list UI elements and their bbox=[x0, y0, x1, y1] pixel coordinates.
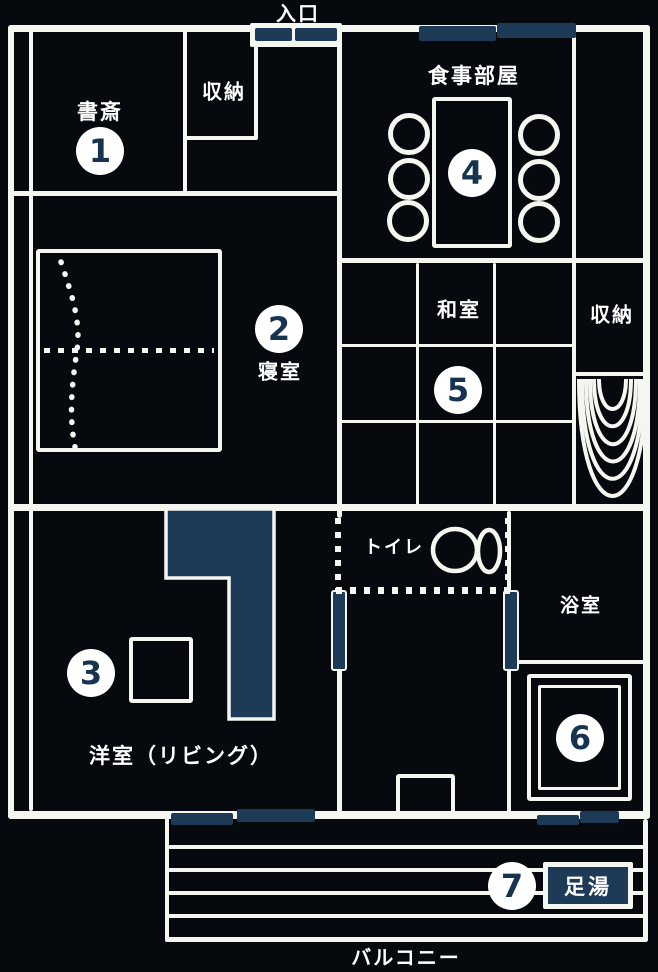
wall-right-corridor bbox=[572, 29, 576, 509]
balcony-door-left-panel-2 bbox=[237, 809, 315, 822]
balcony-label: バルコニー bbox=[351, 942, 461, 971]
balcony-door-right-panel-1 bbox=[537, 815, 579, 825]
balcony-right-edge bbox=[643, 819, 648, 942]
closet-arc-4 bbox=[586, 379, 640, 462]
closet-arc-6 bbox=[579, 379, 646, 496]
entrance-label: 入口 bbox=[276, 0, 320, 27]
dining-chair-1 bbox=[388, 113, 430, 155]
wall-bedroom-top bbox=[8, 191, 341, 196]
dining-label: 食事部屋 bbox=[428, 60, 520, 90]
closet-hanger-arcs bbox=[579, 379, 646, 496]
dining-chair-5 bbox=[518, 159, 560, 201]
balcony-door-left-panel-1 bbox=[171, 813, 233, 825]
living-table bbox=[129, 637, 193, 703]
bedroom-number-badge: 2 bbox=[255, 305, 303, 353]
living-label: 洋室（リビング） bbox=[89, 740, 273, 770]
dining-window-panel-1 bbox=[419, 26, 496, 41]
toilet-tank-icon bbox=[478, 530, 500, 572]
bedroom-label: 寝室 bbox=[258, 356, 302, 385]
tatami-grid-horizontal-1 bbox=[339, 344, 574, 347]
tatami-grid-horizontal-2 bbox=[339, 420, 574, 423]
bathroom-label: 浴室 bbox=[560, 591, 602, 618]
wall-left-inner bbox=[29, 29, 33, 811]
wall-closet-right-bottom bbox=[575, 372, 648, 376]
toilet-partition-left bbox=[335, 518, 341, 590]
wall-mid-divider bbox=[8, 504, 650, 511]
dining-window-panel-2 bbox=[497, 23, 576, 38]
balcony-door-right-panel-2 bbox=[580, 811, 619, 823]
wall-right-outer bbox=[643, 25, 650, 819]
wall-left-outer bbox=[8, 25, 14, 819]
balcony-slat-line-4 bbox=[168, 914, 646, 918]
study-number-badge: 1 bbox=[76, 127, 124, 175]
storage-top-label: 収納 bbox=[202, 76, 246, 105]
tatami-grid-vertical-1 bbox=[416, 263, 419, 506]
study-label: 書斎 bbox=[77, 96, 123, 126]
toilet-bowl-icon bbox=[433, 529, 477, 571]
wall-center-vertical-lower bbox=[337, 665, 342, 815]
washroom-door-post-left bbox=[331, 590, 347, 671]
wall-study-storage-divider bbox=[183, 29, 187, 195]
dining-chair-6 bbox=[518, 201, 560, 243]
bathroom-number-badge: 6 bbox=[556, 714, 604, 762]
japanese-room-number-badge: 5 bbox=[434, 366, 482, 414]
wall-center-vertical-upper bbox=[337, 29, 342, 518]
bed-fold-line bbox=[44, 348, 214, 353]
tatami-grid-vertical-2 bbox=[493, 263, 496, 506]
washroom-sink bbox=[396, 774, 455, 818]
floor-plan: 入口 書斎 収納 食事部屋 和室 収納 寝室 トイレ 浴室 洋室（リビング） バ… bbox=[0, 0, 658, 972]
washroom-door-post-right bbox=[503, 590, 519, 671]
closet-arc-5 bbox=[582, 379, 643, 479]
wall-bath-left-lower bbox=[507, 664, 511, 814]
closet-arc-1 bbox=[599, 379, 626, 409]
toilet-label: トイレ bbox=[364, 533, 424, 559]
wall-bath-inner-divider bbox=[509, 660, 646, 664]
living-number-badge: 3 bbox=[67, 649, 115, 697]
dining-number-badge: 4 bbox=[448, 149, 496, 197]
dining-chair-4 bbox=[518, 114, 560, 156]
japanese-room-label: 和室 bbox=[437, 294, 481, 323]
toilet-partition-bottom bbox=[336, 587, 512, 594]
closet-arc-2 bbox=[594, 379, 631, 426]
dining-chair-3 bbox=[387, 200, 429, 242]
closet-arc-3 bbox=[590, 379, 636, 444]
foot-bath-label: 足湯 bbox=[564, 871, 612, 901]
foot-bath-number-badge: 7 bbox=[488, 862, 536, 910]
entrance-door-panel-1 bbox=[255, 28, 292, 41]
dining-chair-2 bbox=[388, 158, 430, 200]
balcony-slat-line-1 bbox=[168, 845, 646, 849]
toilet-partition-right bbox=[505, 518, 511, 590]
wall-storage-bottom bbox=[185, 136, 258, 140]
balcony-left-edge bbox=[165, 816, 169, 942]
foot-bath-box: 足湯 bbox=[543, 862, 633, 909]
storage-right-label: 収納 bbox=[590, 299, 634, 328]
entrance-door-panel-2 bbox=[295, 28, 337, 41]
